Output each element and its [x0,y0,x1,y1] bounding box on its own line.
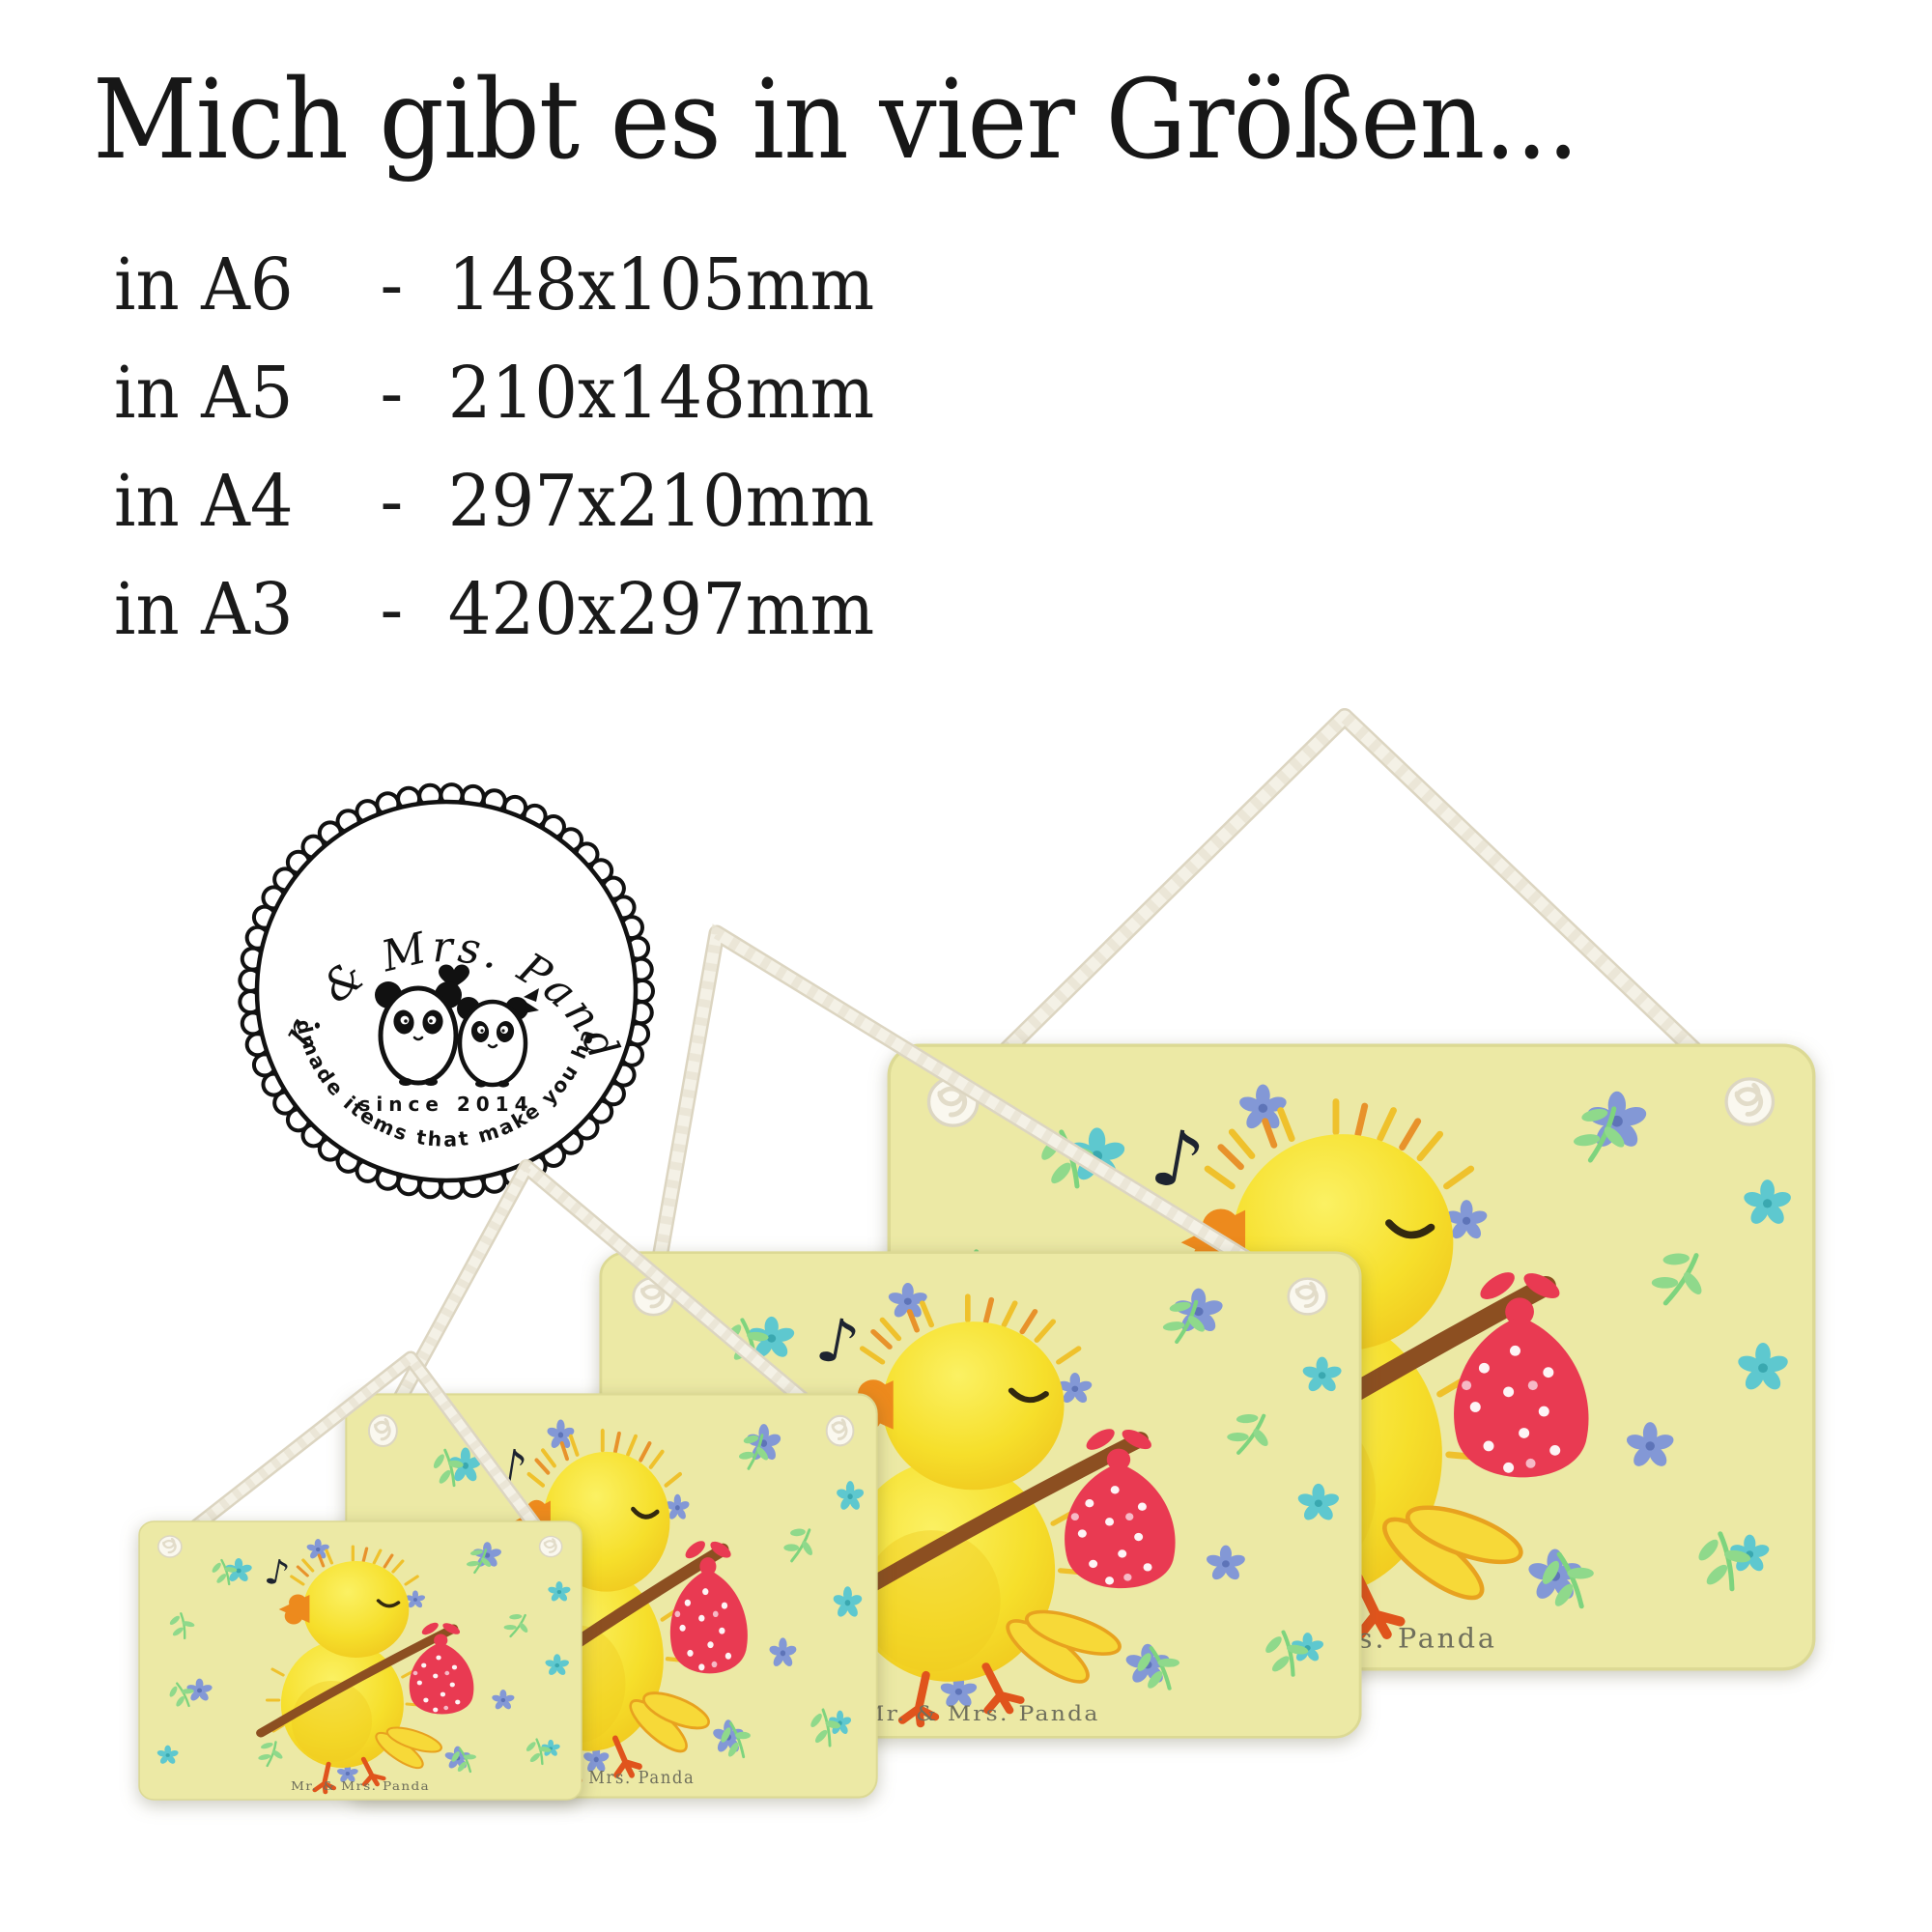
size-row-a3: in A3 - 420x297mm [114,568,874,676]
product-size-infographic: ♪ Mr. & Mrs. Panda Mich gibt es in vier … [0,0,1932,1932]
brand-stamp-badge: Mr. & Mrs. Panda [234,779,659,1204]
size-dimensions: 420x297mm [448,568,874,651]
size-dimensions: 210x148mm [448,352,874,435]
size-dimensions: 297x210mm [448,460,874,543]
size-row-a5: in A5 - 210x148mm [114,352,874,460]
size-label: in A3 [114,568,381,651]
size-label: in A4 [114,460,381,543]
size-row-a6: in A6 - 148x105mm [114,243,874,352]
size-list: in A6 - 148x105mm in A5 - 210x148mm in A… [114,243,874,676]
size-separator: - [381,568,448,651]
size-dimensions: 148x105mm [448,243,874,327]
size-separator: - [381,460,448,543]
page-title: Mich gibt es in vier Größen... [93,56,1755,184]
size-row-a4: in A4 - 297x210mm [114,460,874,568]
size-label: in A5 [114,352,381,435]
badge-since: since 2014 [358,1093,533,1116]
size-separator: - [381,243,448,327]
size-label: in A6 [114,243,381,327]
size-separator: - [381,352,448,435]
deco-sign-a6 [138,1520,582,1801]
